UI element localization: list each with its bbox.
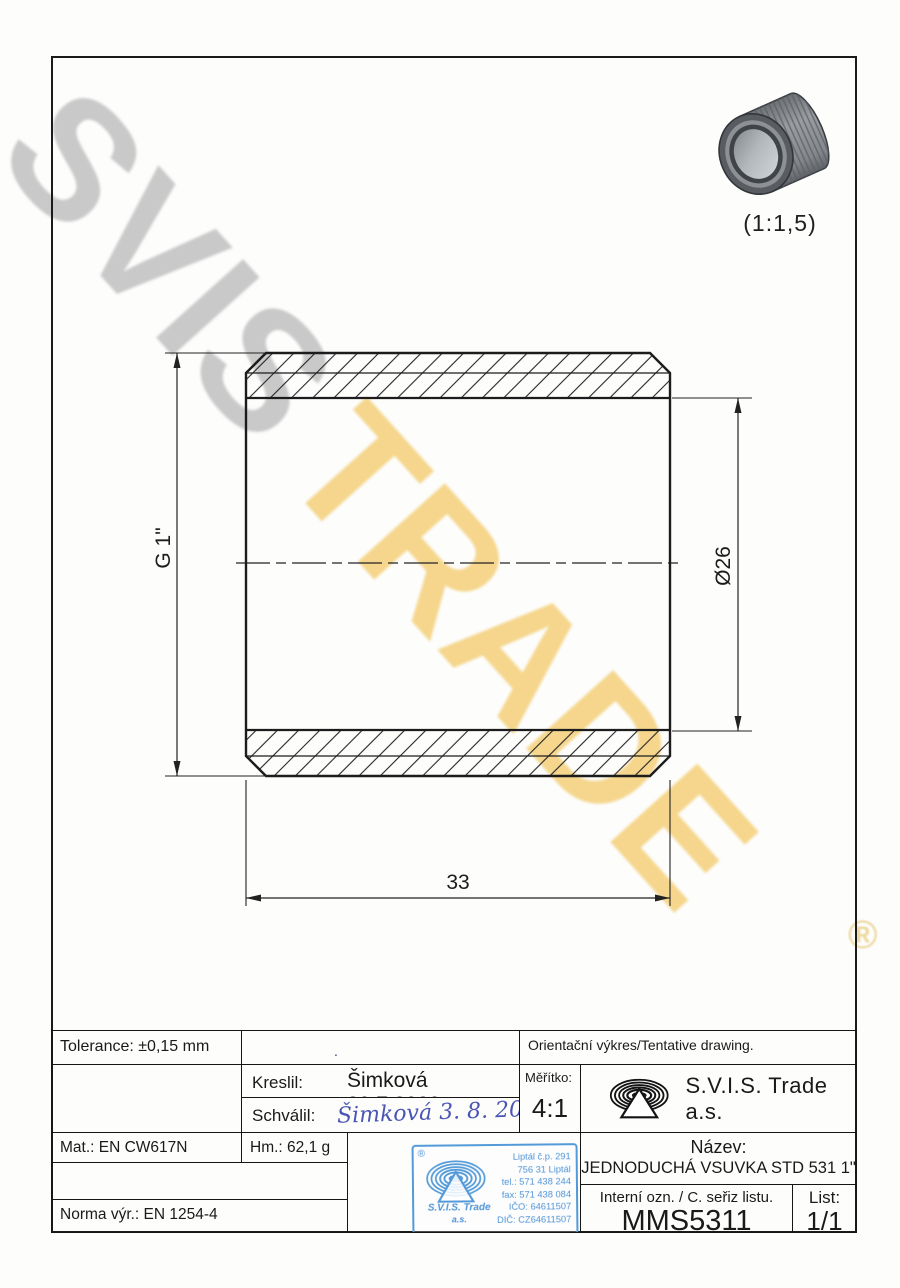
stamp-cell: ® S.V.I.S. Trade a.s. Liptál č.p. 291 75… bbox=[347, 1132, 581, 1233]
thumbnail-scale-label: (1:1,5) bbox=[700, 210, 860, 237]
stamp-company-line2: a.s. bbox=[420, 1214, 498, 1225]
arrow-up-icon bbox=[174, 353, 181, 368]
company-rubber-stamp: ® S.V.I.S. Trade a.s. Liptál č.p. 291 75… bbox=[412, 1143, 579, 1233]
drawn-by-cell: Kreslil: Šimková 30.7.2020 bbox=[241, 1064, 520, 1098]
tolerance-text: Tolerance: ±0,15 mm bbox=[60, 1038, 209, 1056]
part-name-label: Název: bbox=[581, 1137, 856, 1158]
standard-cell: Norma výr.: EN 1254-4 bbox=[51, 1199, 348, 1233]
sheet-cell: List: 1/1 bbox=[792, 1184, 857, 1233]
stamp-address-line: Liptál č.p. 291 bbox=[496, 1150, 570, 1163]
orientation-note-cell: Orientační výkres/Tentative drawing. bbox=[519, 1030, 857, 1065]
part-3d-thumbnail bbox=[698, 66, 858, 216]
title-block: Tolerance: ±0,15 mm . Orientační výkres/… bbox=[51, 1030, 857, 1233]
company-name: S.V.I.S. Trade a.s. bbox=[686, 1073, 857, 1125]
part-name-value: JEDNODUCHÁ VSUVKA STD 531 1" bbox=[581, 1159, 856, 1178]
svis-logo-icon bbox=[609, 1076, 670, 1122]
arrow-down-icon bbox=[735, 716, 742, 731]
drawn-by-label: Kreslil: bbox=[252, 1073, 303, 1093]
sheet-label: List: bbox=[793, 1188, 856, 1208]
approved-by-cell: Schválil: Šimková 3. 8. 2020 bbox=[241, 1097, 520, 1133]
material-text: Mat.: EN CW617N bbox=[60, 1139, 187, 1157]
stamp-address-line: 756 31 Liptál bbox=[496, 1163, 570, 1176]
empty-cell bbox=[51, 1162, 348, 1200]
dim-label-bore: Ø26 bbox=[712, 546, 735, 586]
part-name-cell: Název: JEDNODUCHÁ VSUVKA STD 531 1" bbox=[580, 1132, 857, 1185]
part-outline bbox=[246, 353, 670, 776]
mass-cell: Hm.: 62,1 g bbox=[241, 1132, 348, 1163]
internal-id-label: Interní ozn. / C. seřiz listu. bbox=[581, 1189, 792, 1206]
dim-label-length: 33 bbox=[446, 871, 469, 894]
scale-cell: Měřítko: 4:1 bbox=[519, 1064, 581, 1133]
dim-label-g1: G 1" bbox=[152, 527, 175, 568]
internal-id-value: MMS5311 bbox=[581, 1205, 792, 1233]
orientation-note-text: Orientační výkres/Tentative drawing. bbox=[528, 1037, 754, 1053]
scale-label: Měřítko: bbox=[525, 1070, 572, 1085]
bottom-wall-hatch bbox=[246, 730, 670, 776]
stamp-address-line: IČO: 64611507 bbox=[497, 1200, 571, 1213]
arrow-left-icon bbox=[246, 895, 261, 902]
stamp-company-line1: S.V.I.S. Trade bbox=[420, 1202, 498, 1214]
mass-text: Hm.: 62,1 g bbox=[250, 1139, 330, 1157]
stamp-address-block: Liptál č.p. 291 756 31 Liptál tel.: 571 … bbox=[496, 1150, 571, 1226]
stamp-address-line: DIČ: CZ64611507 bbox=[497, 1213, 571, 1226]
material-cell: Mat.: EN CW617N bbox=[51, 1132, 242, 1163]
stamp-address-line: fax: 571 438 084 bbox=[497, 1188, 571, 1201]
stamp-address-line: tel.: 571 438 244 bbox=[497, 1175, 571, 1188]
standard-text: Norma výr.: EN 1254-4 bbox=[60, 1206, 218, 1224]
stray-dot: . bbox=[334, 1043, 338, 1059]
drawn-by-value: Šimková 30.7.2020 bbox=[347, 1069, 519, 1098]
company-cell: S.V.I.S. Trade a.s. bbox=[580, 1064, 857, 1133]
arrow-up-icon bbox=[735, 398, 742, 413]
stamp-logo-icon bbox=[424, 1158, 488, 1205]
scale-value: 4:1 bbox=[520, 1093, 580, 1124]
empty-cell: . bbox=[241, 1030, 520, 1065]
tolerance-cell: Tolerance: ±0,15 mm bbox=[51, 1030, 242, 1065]
approval-signature: Šimková 3. 8. 2020 bbox=[337, 1097, 520, 1129]
threaded-sleeve-render bbox=[706, 88, 837, 206]
approved-by-label: Schválil: bbox=[252, 1106, 315, 1126]
arrow-down-icon bbox=[174, 761, 181, 776]
internal-id-cell: Interní ozn. / C. seřiz listu. MMS5311 bbox=[580, 1184, 793, 1233]
arrow-right-icon bbox=[655, 895, 670, 902]
sheet-value: 1/1 bbox=[793, 1206, 856, 1233]
empty-cell bbox=[51, 1064, 242, 1133]
top-wall-hatch bbox=[246, 353, 670, 398]
